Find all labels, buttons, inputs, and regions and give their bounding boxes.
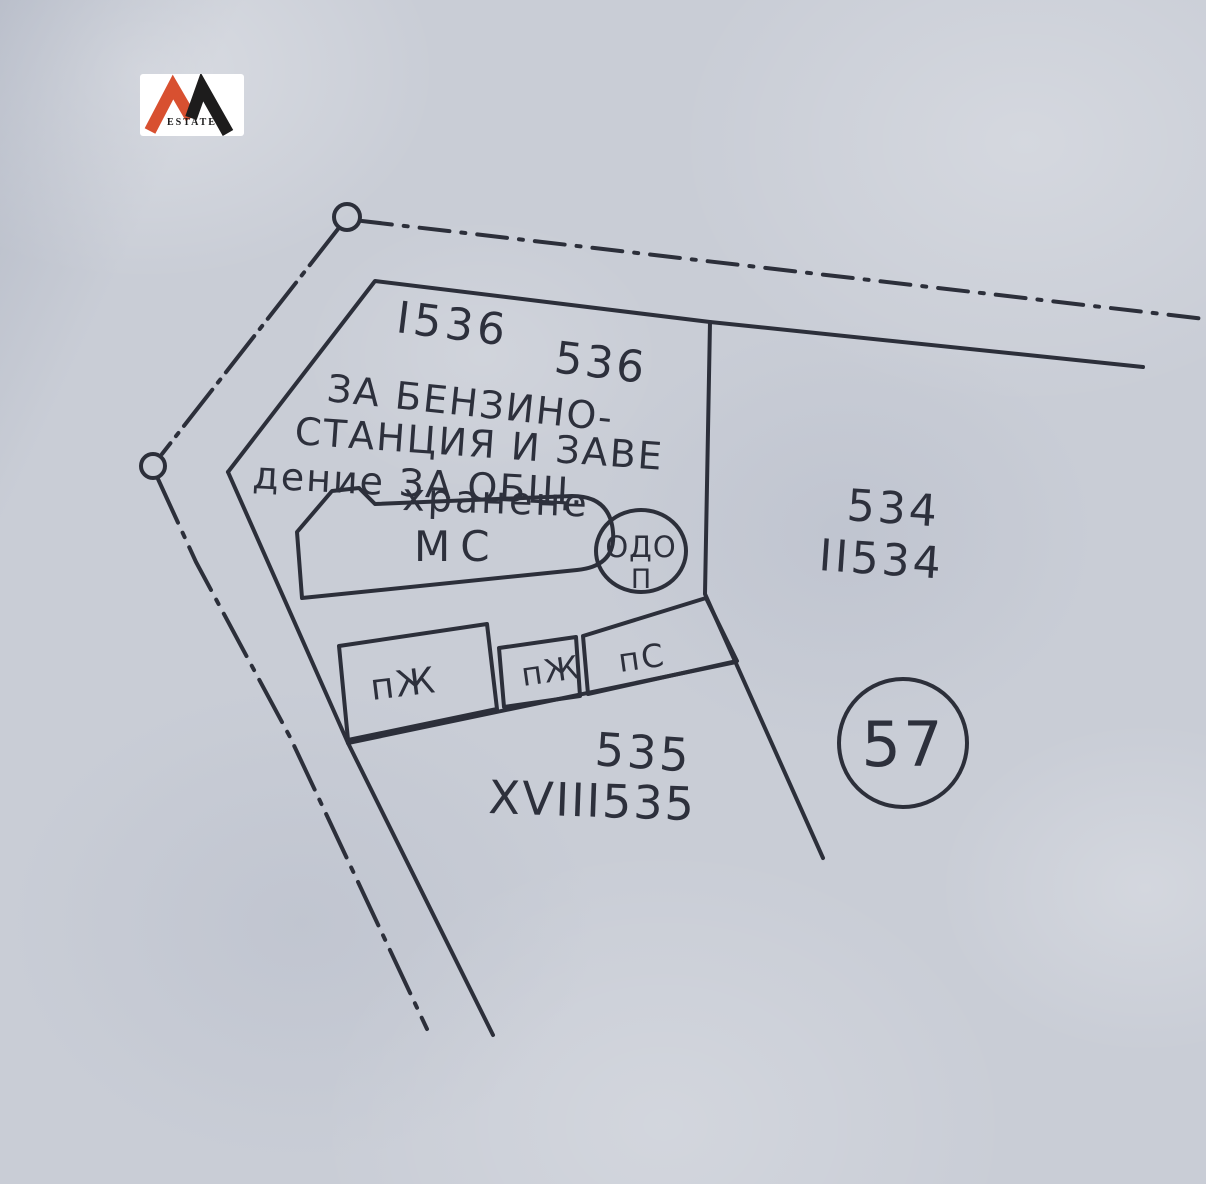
site-plan-sketch: I536 536 ЗА БЕНЗИНО- СТАНЦИЯ И ЗАВЕ дени…	[0, 0, 1206, 1184]
label-parcel-534: 534	[845, 480, 941, 537]
label-parcel-534-roman: II534	[817, 530, 945, 590]
label-parcel-536: 536	[552, 332, 651, 394]
label-shed-right: пС	[616, 636, 668, 680]
survey-marker-circle-top	[334, 204, 360, 230]
survey-marker-circle-left	[141, 454, 165, 478]
parcel-left-boundary	[228, 472, 348, 743]
access-road-line	[348, 743, 493, 1035]
label-parcel-536-roman: I536	[394, 292, 512, 356]
label-building-ms: МС	[414, 522, 500, 571]
boundary-dashdot-lower	[158, 479, 427, 1029]
label-plot-57: 57	[862, 708, 945, 781]
label-shed-mid: пЖ	[519, 648, 583, 694]
label-note-line4: хранене	[402, 475, 591, 526]
label-shed-left: пЖ	[368, 660, 439, 709]
label-parcel-535-roman: XVIII535	[488, 770, 697, 831]
scanned-plan-page: ESTATE I536 536 ЗА	[0, 0, 1206, 1184]
label-building-odo-sub: П	[631, 564, 651, 595]
label-building-odo: ОДО	[605, 530, 676, 564]
parcel-right-boundary	[705, 322, 823, 858]
